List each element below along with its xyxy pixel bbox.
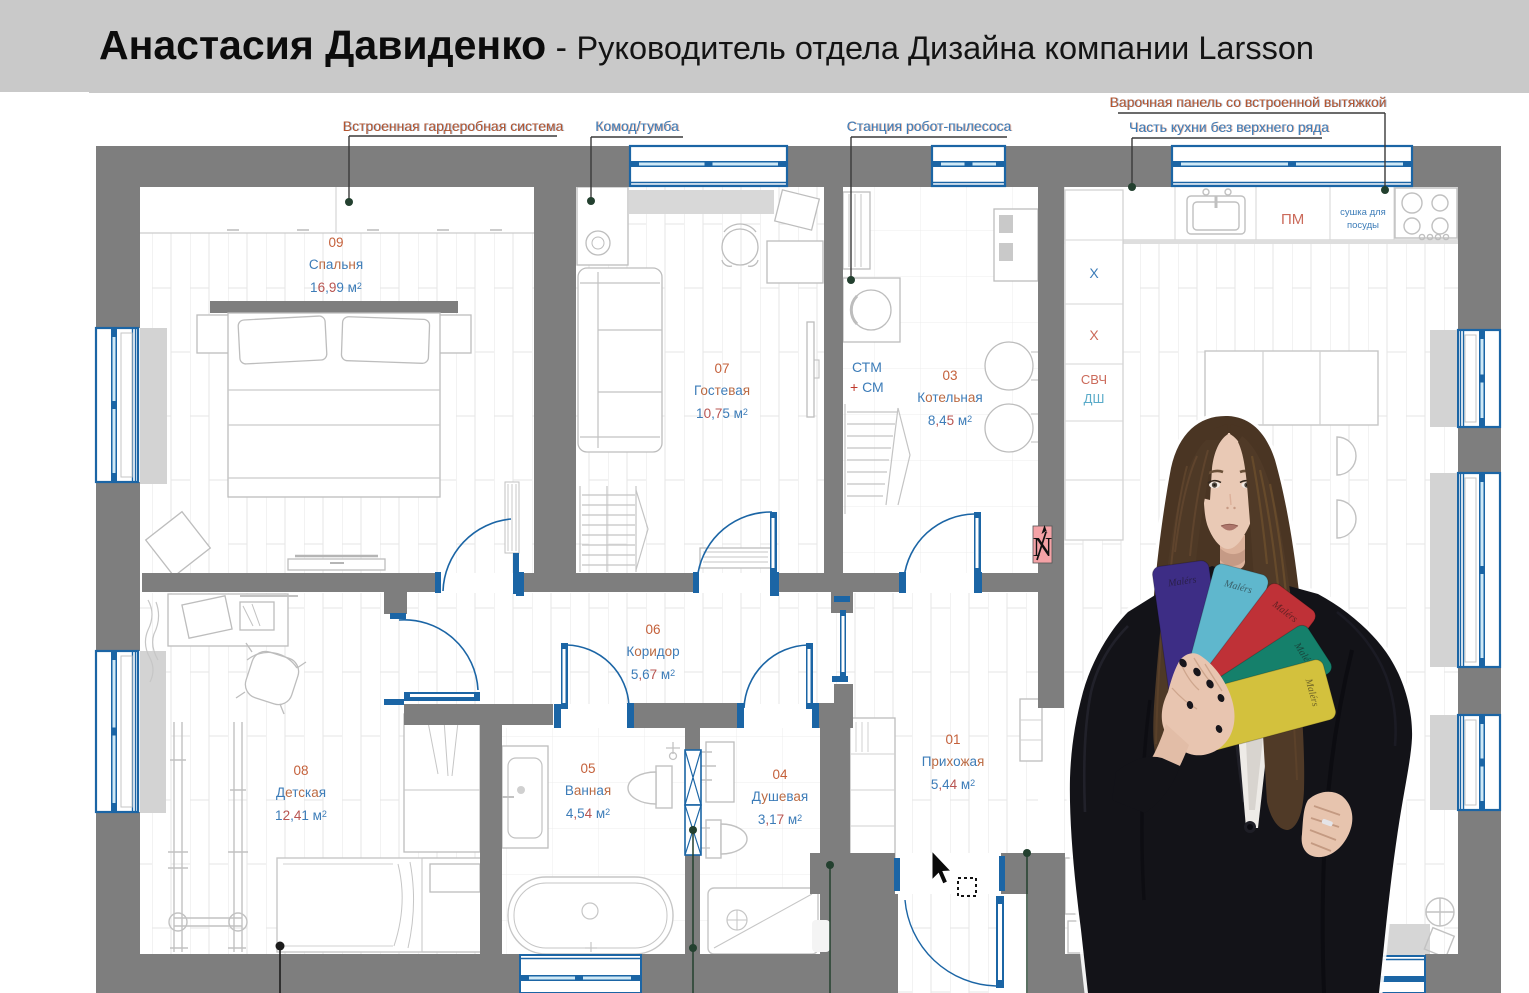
svg-text:Варочная панель со встроенной: Варочная панель со встроенной вытяжкой xyxy=(1109,94,1386,110)
svg-text:Душевая: Душевая xyxy=(752,789,808,804)
svg-text:X: X xyxy=(1089,265,1099,281)
svg-text:03: 03 xyxy=(942,368,957,383)
svg-text:СВЧ: СВЧ xyxy=(1081,372,1107,387)
svg-text:04: 04 xyxy=(772,767,788,782)
svg-text:16,99 м2: 16,99 м2 xyxy=(310,280,362,295)
svg-text:Встроенная гардеробная система: Встроенная гардеробная система xyxy=(343,118,564,134)
svg-text:ДШ: ДШ xyxy=(1084,391,1105,406)
svg-text:06: 06 xyxy=(645,622,660,637)
svg-text:12,41 м2: 12,41 м2 xyxy=(275,808,327,823)
svg-text:08: 08 xyxy=(293,763,308,778)
svg-text:Детская: Детская xyxy=(276,785,326,800)
svg-text:10,75 м2: 10,75 м2 xyxy=(696,406,748,421)
svg-text:Прихожая: Прихожая xyxy=(922,754,985,769)
svg-text:Ванная: Ванная xyxy=(565,783,611,798)
svg-text:8,45 м2: 8,45 м2 xyxy=(928,413,972,428)
svg-text:СТМ: СТМ xyxy=(852,359,882,375)
svg-text:Коридор: Коридор xyxy=(626,644,679,659)
svg-text:09: 09 xyxy=(328,235,343,250)
svg-text:3,17 м2: 3,17 м2 xyxy=(758,812,802,827)
svg-text:01: 01 xyxy=(945,732,960,747)
svg-text:4,54 м2: 4,54 м2 xyxy=(566,806,610,821)
svg-text:Гостевая: Гостевая xyxy=(694,383,750,398)
svg-text:Станция робот-пылесоса: Станция робот-пылесоса xyxy=(847,118,1012,134)
svg-text:05: 05 xyxy=(580,761,595,776)
svg-text:Котельная: Котельная xyxy=(917,390,982,405)
svg-text:07: 07 xyxy=(714,361,729,376)
svg-text:Спальня: Спальня xyxy=(309,257,363,272)
svg-text:Часть кухни без верхнего ряда: Часть кухни без верхнего ряда xyxy=(1129,119,1329,135)
svg-text:5,67 м2: 5,67 м2 xyxy=(631,667,675,682)
svg-text:+ СМ: + СМ xyxy=(850,379,884,395)
svg-text:Комод/тумба: Комод/тумба xyxy=(595,118,679,134)
svg-text:ПМ: ПМ xyxy=(1281,211,1304,228)
svg-text:сушка для: сушка для xyxy=(1340,207,1386,218)
svg-text:5,44 м2: 5,44 м2 xyxy=(931,777,975,792)
svg-text:X: X xyxy=(1089,327,1099,343)
svg-text:посуды: посуды xyxy=(1347,220,1379,231)
svg-text:N: N xyxy=(1033,532,1053,562)
